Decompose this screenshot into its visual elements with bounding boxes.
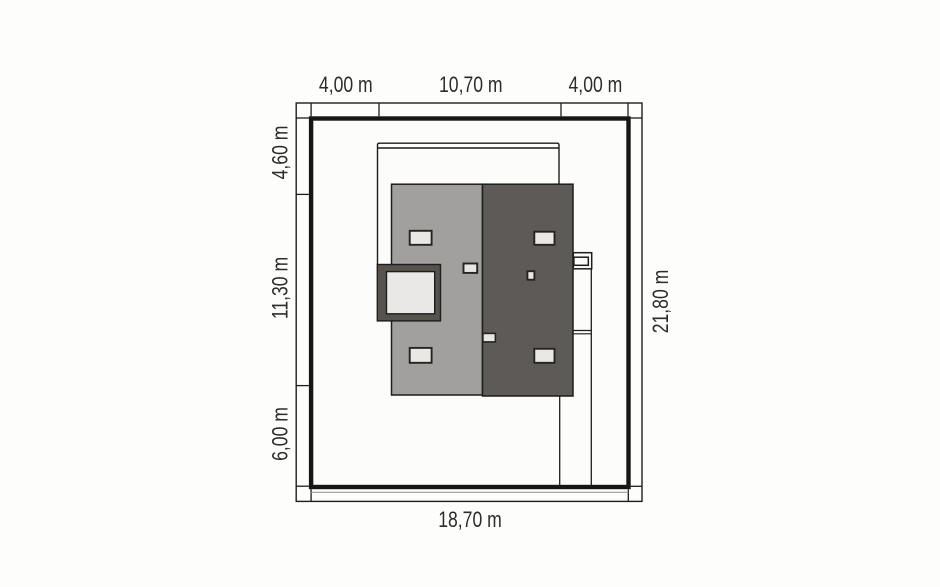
svg-text:21,80 m: 21,80 m — [649, 270, 673, 334]
svg-text:11,30 m: 11,30 m — [269, 257, 293, 319]
svg-text:10,70 m: 10,70 m — [439, 73, 503, 97]
svg-text:18,70 m: 18,70 m — [438, 508, 502, 532]
svg-text:4,00 m: 4,00 m — [569, 73, 623, 97]
svg-text:6,00 m: 6,00 m — [269, 407, 293, 461]
svg-text:4,60 m: 4,60 m — [269, 126, 293, 180]
svg-text:4,00 m: 4,00 m — [319, 73, 373, 97]
